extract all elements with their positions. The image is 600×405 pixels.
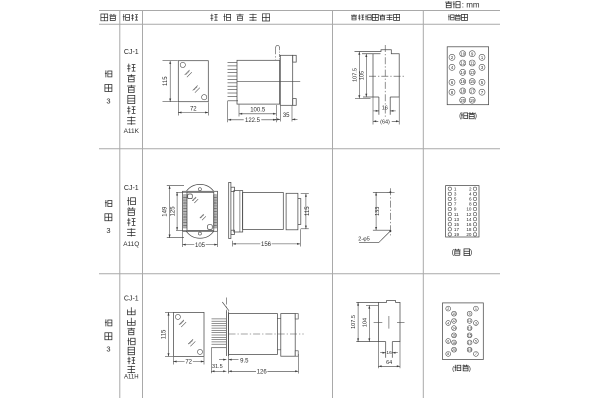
svg-text:20: 20 (460, 98, 465, 103)
svg-text:8: 8 (447, 352, 449, 356)
svg-text:16: 16 (382, 106, 388, 112)
svg-text:19: 19 (468, 348, 472, 352)
svg-text:149: 149 (163, 206, 169, 217)
svg-text:12: 12 (460, 61, 465, 66)
svg-text:CJ-1: CJ-1 (124, 185, 139, 192)
svg-text:17: 17 (470, 88, 475, 93)
svg-text:100.5: 100.5 (250, 107, 266, 113)
svg-text:20: 20 (466, 232, 472, 237)
svg-text:107.5: 107.5 (352, 68, 358, 82)
svg-text:10: 10 (452, 312, 456, 316)
svg-text:14: 14 (460, 70, 465, 75)
svg-text:16: 16 (386, 350, 392, 356)
svg-text:16: 16 (452, 334, 456, 338)
svg-text:6: 6 (447, 339, 449, 343)
svg-text:3: 3 (106, 345, 110, 354)
svg-text:20: 20 (452, 348, 456, 352)
svg-text:CJ-1: CJ-1 (124, 295, 139, 302)
svg-text:107.5: 107.5 (351, 315, 357, 329)
svg-text:3: 3 (106, 96, 110, 105)
svg-text:14: 14 (452, 326, 456, 330)
svg-text:13: 13 (468, 326, 472, 330)
svg-text:A11H: A11H (124, 375, 139, 381)
svg-text:4: 4 (447, 321, 449, 325)
svg-text:156: 156 (261, 242, 272, 248)
svg-text:126: 126 (257, 369, 268, 375)
svg-text:19: 19 (470, 98, 475, 103)
svg-text:133: 133 (375, 207, 381, 216)
svg-text:18: 18 (460, 88, 465, 93)
svg-text:15: 15 (468, 334, 472, 338)
svg-text:12: 12 (452, 319, 456, 323)
svg-text:16: 16 (460, 79, 465, 84)
svg-text:): ) (475, 113, 477, 120)
svg-text:115: 115 (162, 329, 168, 339)
svg-text:105: 105 (195, 243, 206, 249)
svg-text:105: 105 (360, 71, 366, 80)
svg-text:72: 72 (185, 360, 192, 366)
svg-text:18: 18 (452, 341, 456, 345)
svg-text:3: 3 (106, 226, 110, 235)
svg-text:125: 125 (170, 206, 176, 217)
svg-text:3: 3 (475, 321, 477, 325)
svg-text:A11Q: A11Q (123, 241, 139, 248)
svg-text:mm: mm (466, 1, 480, 10)
svg-text:A11K: A11K (124, 128, 140, 135)
svg-text:11: 11 (470, 61, 475, 66)
svg-text:35: 35 (283, 113, 290, 119)
svg-text:): ) (469, 365, 471, 372)
svg-text:115: 115 (163, 76, 169, 86)
svg-text:31.5: 31.5 (212, 364, 223, 370)
svg-text:122.5: 122.5 (245, 118, 261, 124)
svg-text:2-φ5: 2-φ5 (358, 237, 370, 243)
svg-text:(64): (64) (380, 119, 390, 125)
svg-text:2: 2 (447, 307, 449, 311)
svg-text:9: 9 (469, 312, 471, 316)
svg-text:64: 64 (386, 360, 392, 366)
svg-text:17: 17 (468, 341, 472, 345)
svg-text:9.5: 9.5 (240, 359, 249, 365)
svg-text:115: 115 (305, 206, 311, 216)
svg-text:5: 5 (475, 339, 477, 343)
svg-text:104: 104 (363, 318, 369, 327)
svg-text:1: 1 (475, 307, 477, 311)
svg-text:11: 11 (468, 319, 472, 323)
svg-text:7: 7 (475, 352, 477, 356)
svg-text:13: 13 (470, 70, 475, 75)
svg-text:): ) (470, 250, 472, 257)
svg-text:10: 10 (460, 51, 465, 56)
svg-text:15: 15 (470, 79, 475, 84)
svg-text:19: 19 (454, 232, 460, 237)
svg-text:CJ-1: CJ-1 (124, 49, 139, 56)
svg-text::: : (462, 1, 464, 10)
svg-text:72: 72 (190, 106, 197, 112)
